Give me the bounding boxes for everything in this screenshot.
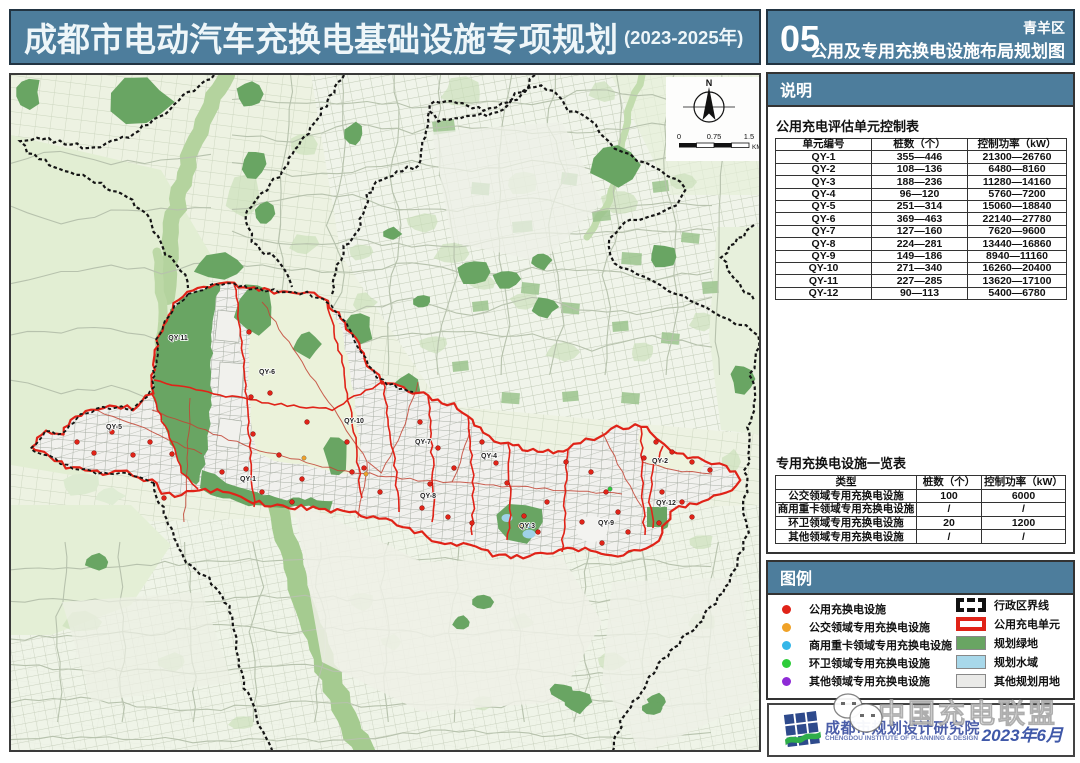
svg-text:QY-9: QY-9 [598, 520, 614, 527]
svg-text:QY-10: QY-10 [344, 418, 364, 425]
svg-text:QY-7: QY-7 [415, 439, 431, 446]
svg-text:QY-2: QY-2 [652, 458, 668, 465]
svg-text:KM: KM [752, 144, 761, 151]
svg-text:1.5: 1.5 [744, 132, 754, 141]
svg-text:QY-4: QY-4 [481, 453, 497, 460]
svg-text:0.75: 0.75 [707, 132, 722, 141]
svg-text:QY-11: QY-11 [168, 335, 188, 342]
svg-text:QY-3: QY-3 [519, 523, 535, 530]
svg-text:QY-8: QY-8 [420, 493, 436, 500]
svg-text:QY-6: QY-6 [259, 369, 275, 376]
svg-text:N: N [706, 78, 713, 88]
svg-text:0: 0 [677, 132, 681, 141]
svg-text:QY-12: QY-12 [656, 500, 676, 507]
svg-text:QY-1: QY-1 [240, 476, 256, 483]
svg-text:QY-5: QY-5 [106, 424, 122, 431]
